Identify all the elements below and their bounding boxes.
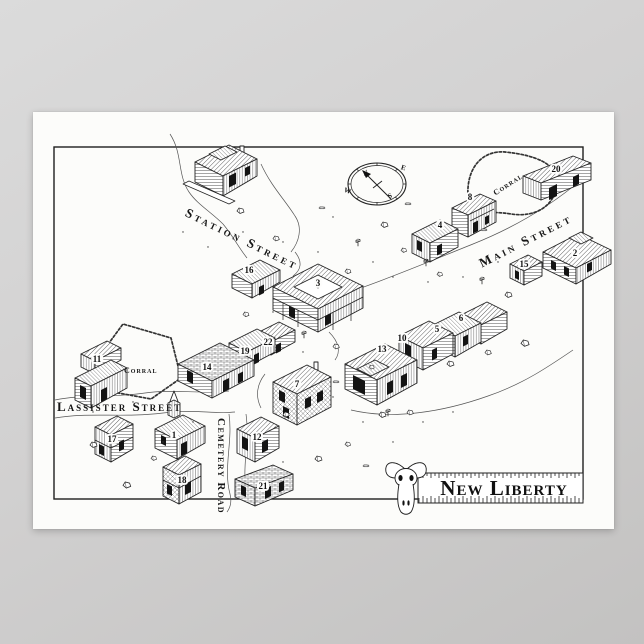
building-number-3: 3 <box>314 278 322 288</box>
building-7-illustration <box>273 362 331 425</box>
building-8-illustration <box>452 194 496 237</box>
building-number-21: 21 <box>257 481 269 491</box>
map-title: New Liberty <box>427 474 581 502</box>
building-number-15: 15 <box>518 259 530 269</box>
building-2-illustration <box>543 232 611 284</box>
building-number-7: 7 <box>293 379 301 389</box>
building-3-illustration <box>273 264 363 332</box>
street-label-cemetery: Cemetery Road <box>215 418 227 514</box>
town-map-drawing <box>33 112 614 529</box>
building-number-4: 4 <box>436 220 444 230</box>
building-number-11: 11 <box>91 354 103 364</box>
building-number-14: 14 <box>201 362 213 372</box>
building-4-illustration <box>412 220 458 262</box>
poster-mockup-scene: Station Street Main Street Lassister Str… <box>0 0 644 644</box>
train-station-illustration <box>183 145 257 204</box>
building-number-19: 19 <box>239 346 251 356</box>
building-number-18: 18 <box>176 475 188 485</box>
building-number-5: 5 <box>433 324 441 334</box>
building-number-16: 16 <box>243 265 255 275</box>
building-number-12: 12 <box>251 432 263 442</box>
building-number-6: 6 <box>457 313 465 323</box>
building-number-1: 1 <box>170 430 178 440</box>
building-20-illustration <box>523 156 591 200</box>
corral-label-left: Corral <box>124 366 157 375</box>
map-poster: Station Street Main Street Lassister Str… <box>33 112 614 529</box>
building-number-8: 8 <box>466 192 474 202</box>
building-number-22: 22 <box>262 337 274 347</box>
building-number-2: 2 <box>571 248 579 258</box>
building-number-13: 13 <box>376 344 388 354</box>
compass-rose-icon <box>348 163 406 205</box>
building-number-10: 10 <box>396 333 408 343</box>
building-11-illustration <box>75 341 127 408</box>
building-number-20: 20 <box>550 164 562 174</box>
building-number-17: 17 <box>106 434 118 444</box>
street-label-lassister: Lassister Street <box>57 399 182 415</box>
